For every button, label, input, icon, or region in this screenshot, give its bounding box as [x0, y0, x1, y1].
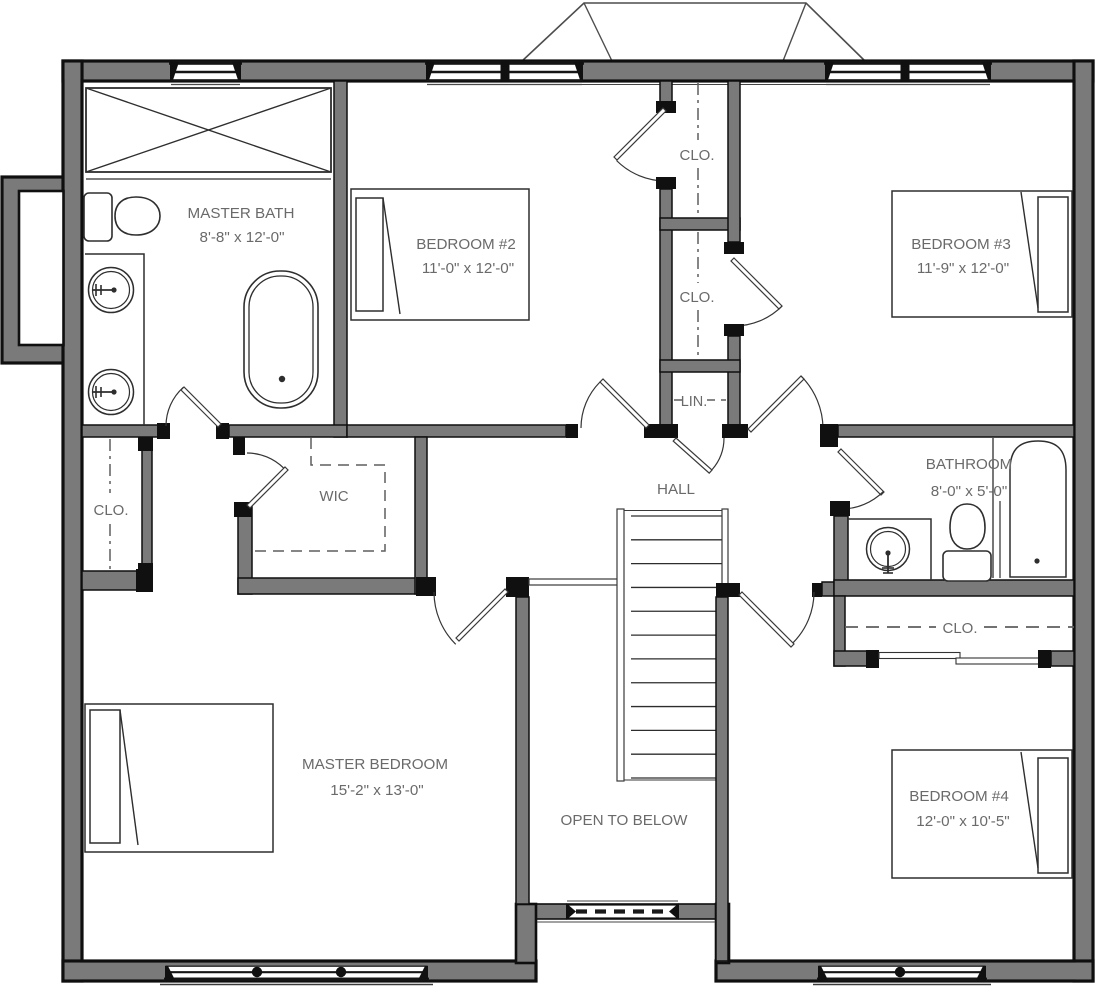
svg-text:15'-2" x 13'-0": 15'-2" x 13'-0" — [330, 782, 423, 799]
svg-text:BATHROOM: BATHROOM — [926, 456, 1013, 473]
svg-text:LIN.: LIN. — [681, 394, 708, 410]
svg-text:MASTER BATH: MASTER BATH — [188, 205, 295, 222]
svg-text:CLO.: CLO. — [942, 620, 977, 637]
svg-text:8'-0" x 5'-0": 8'-0" x 5'-0" — [931, 483, 1008, 500]
svg-text:8'-8" x 12'-0": 8'-8" x 12'-0" — [200, 229, 285, 246]
svg-text:11'-0" x 12'-0": 11'-0" x 12'-0" — [422, 260, 514, 277]
svg-text:MASTER BEDROOM: MASTER BEDROOM — [302, 756, 448, 773]
svg-text:BEDROOM #3: BEDROOM #3 — [911, 236, 1011, 253]
svg-text:12'-0" x 10'-5": 12'-0" x 10'-5" — [916, 813, 1009, 830]
svg-text:CLO.: CLO. — [93, 502, 128, 519]
svg-text:11'-9" x 12'-0": 11'-9" x 12'-0" — [917, 260, 1009, 277]
svg-text:CLO.: CLO. — [679, 147, 714, 164]
svg-text:BEDROOM #2: BEDROOM #2 — [416, 236, 516, 253]
svg-text:HALL: HALL — [657, 481, 695, 498]
svg-text:CLO.: CLO. — [679, 289, 714, 306]
svg-text:WIC: WIC — [319, 488, 348, 505]
svg-text:OPEN TO BELOW: OPEN TO BELOW — [561, 812, 689, 829]
svg-text:BEDROOM #4: BEDROOM #4 — [909, 788, 1009, 805]
